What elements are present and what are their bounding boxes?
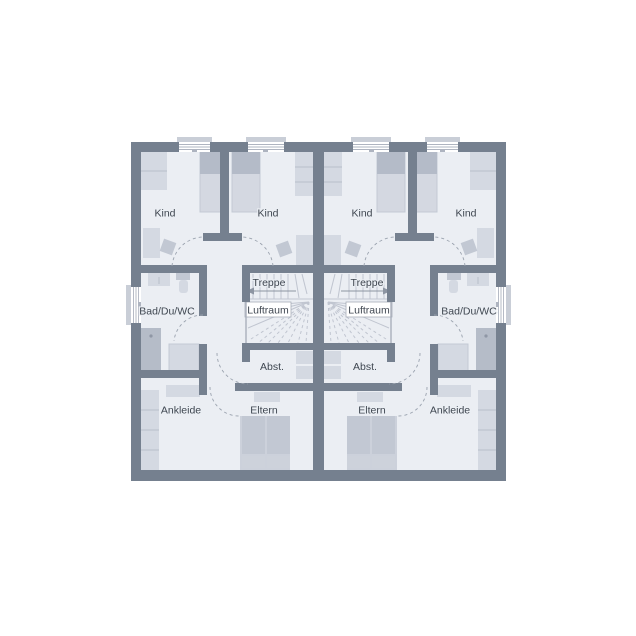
room-label-stairs-left: Treppe: [253, 277, 286, 289]
room-label-parents-right: Eltern: [358, 405, 386, 417]
room-label-bath-right: Bad/Du/WC: [441, 306, 497, 318]
room-label-parents-left: Eltern: [250, 405, 278, 417]
room-label-kind-4: Kind: [455, 208, 476, 220]
floor-plan: Kind Kind Kind Kind Bad/Du/WC Bad/Du/WC …: [0, 0, 636, 636]
room-label-storage-left: Abst.: [260, 361, 284, 373]
room-label-bath-left: Bad/Du/WC: [139, 306, 195, 318]
room-label-void-left: Luftraum: [247, 305, 289, 317]
room-label-kind-1: Kind: [154, 208, 175, 220]
room-label-void-right: Luftraum: [348, 305, 390, 317]
room-label-stairs-right: Treppe: [351, 277, 384, 289]
room-label-dressing-left: Ankleide: [161, 405, 201, 417]
room-label-storage-right: Abst.: [353, 361, 377, 373]
room-label-kind-2: Kind: [257, 208, 278, 220]
room-label-kind-3: Kind: [351, 208, 372, 220]
room-label-dressing-right: Ankleide: [430, 405, 470, 417]
floor-plan-page: Kind Kind Kind Kind Bad/Du/WC Bad/Du/WC …: [0, 0, 636, 636]
